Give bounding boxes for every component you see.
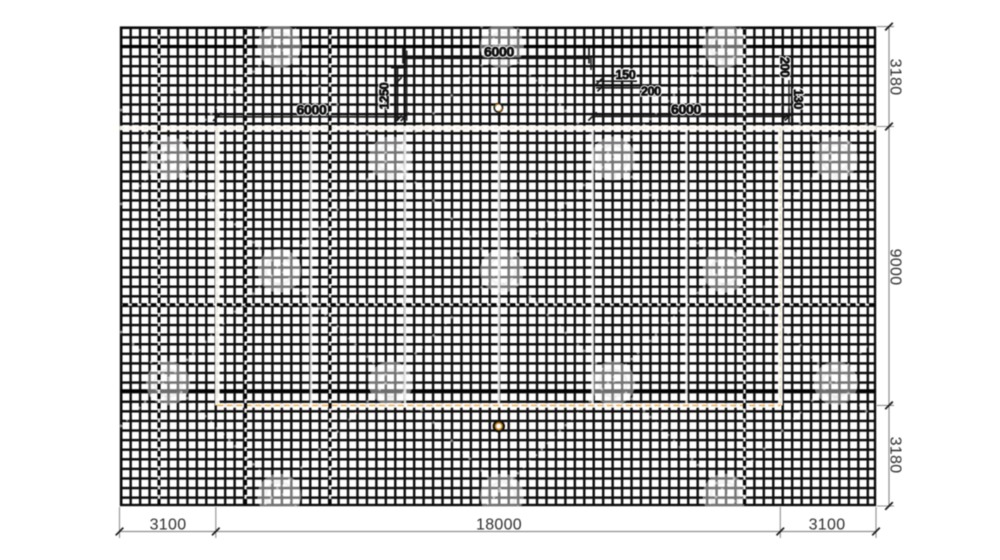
svg-text:150: 150 [616,68,636,82]
svg-text:18000: 18000 [476,517,522,534]
svg-text:3100: 3100 [809,517,846,534]
svg-text:3180: 3180 [887,59,904,96]
svg-text:1250: 1250 [378,82,392,109]
svg-text:6000: 6000 [671,101,701,117]
svg-text:3180: 3180 [887,437,904,474]
svg-text:3100: 3100 [150,517,187,534]
svg-text:6000: 6000 [297,102,327,118]
svg-text:6000: 6000 [484,44,514,60]
svg-text:130: 130 [791,89,805,109]
svg-text:200: 200 [778,57,792,77]
svg-text:200: 200 [641,84,661,98]
svg-text:9000: 9000 [887,249,904,286]
